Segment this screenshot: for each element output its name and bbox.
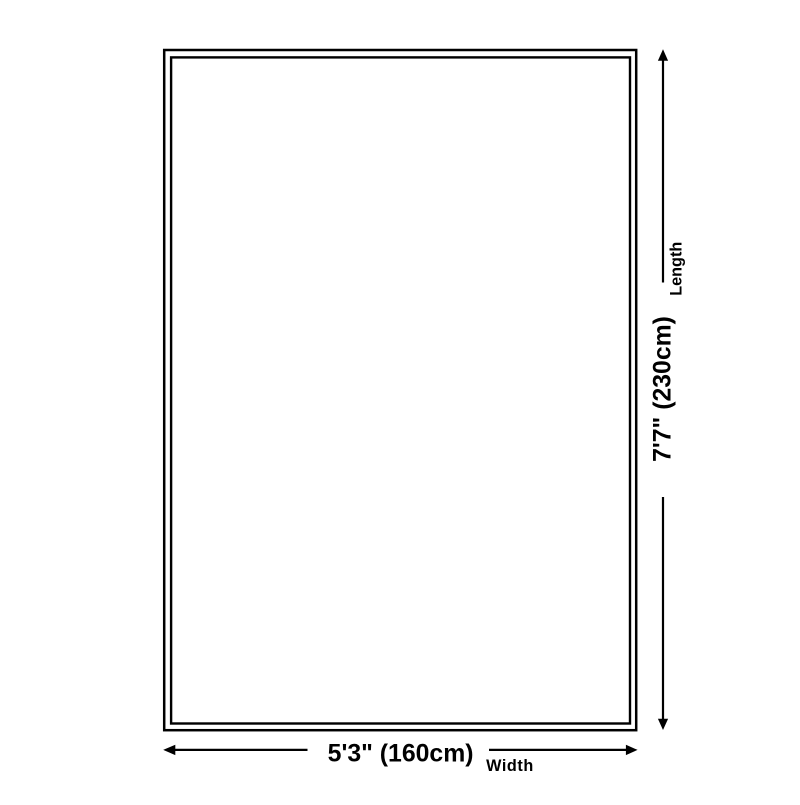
svg-text:Width: Width: [486, 757, 534, 775]
svg-text:5'3" (160cm): 5'3" (160cm): [328, 740, 474, 767]
svg-text:Length: Length: [668, 242, 686, 296]
svg-text:7'7" (230cm): 7'7" (230cm): [649, 316, 676, 462]
